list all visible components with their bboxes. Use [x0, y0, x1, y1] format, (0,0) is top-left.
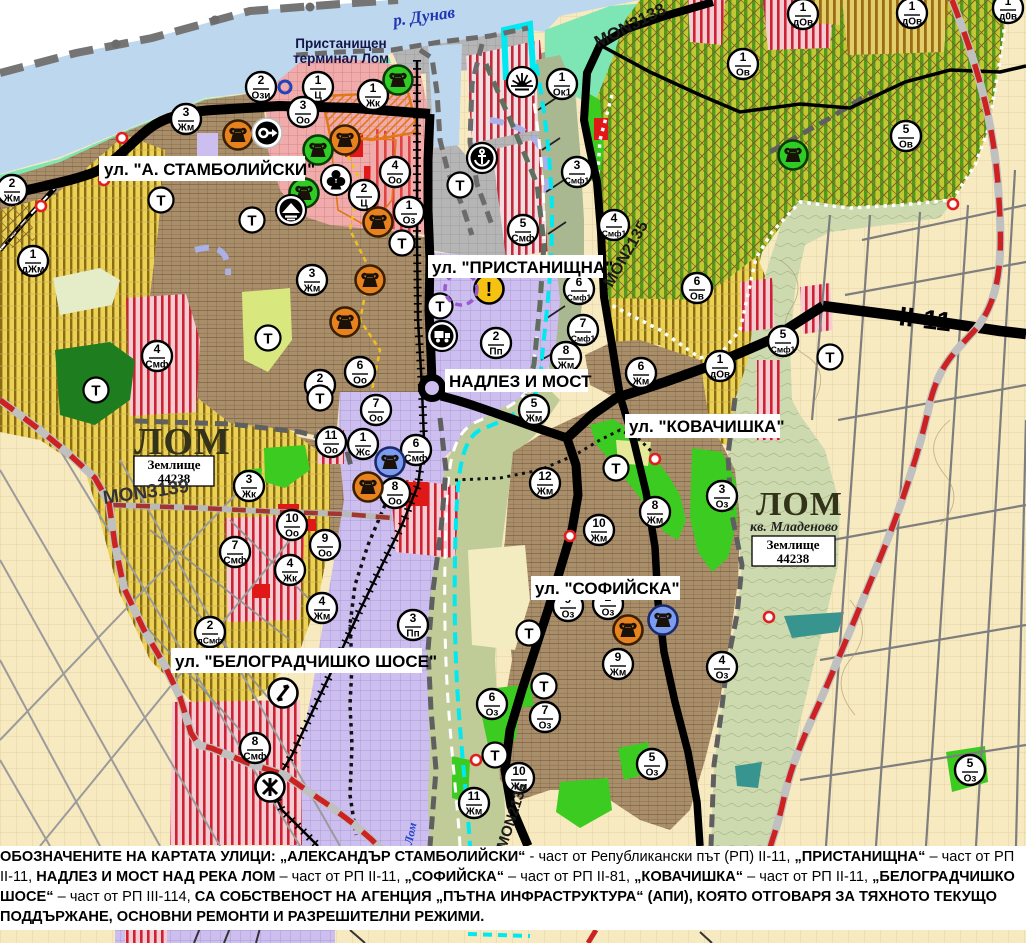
- svg-text:4: 4: [719, 653, 726, 667]
- svg-text:Ц: Ц: [314, 91, 322, 102]
- svg-text:!: !: [486, 279, 493, 301]
- svg-text:Жк: Жк: [241, 490, 257, 501]
- svg-text:Жк: Жк: [365, 99, 381, 110]
- svg-text:II-11: II-11: [897, 301, 953, 337]
- svg-text:Оо: Оо: [296, 116, 310, 127]
- svg-text:3: 3: [246, 472, 253, 486]
- svg-text:Ов: Ов: [690, 292, 704, 303]
- svg-text:Оз: Оз: [646, 768, 659, 779]
- svg-text:Оо: Оо: [285, 529, 299, 540]
- svg-text:ул. "СОФИЙСКА": ул. "СОФИЙСКА": [535, 579, 680, 598]
- svg-text:3: 3: [300, 98, 307, 112]
- svg-text:дОв: дОв: [902, 17, 922, 28]
- svg-text:4: 4: [611, 211, 618, 225]
- svg-text:5: 5: [903, 122, 910, 136]
- svg-text:12: 12: [538, 469, 552, 483]
- svg-text:дЖм: дЖм: [22, 265, 45, 276]
- svg-text:Пристанищен: Пристанищен: [295, 36, 386, 51]
- svg-text:4: 4: [154, 342, 161, 356]
- svg-text:4: 4: [287, 556, 294, 570]
- svg-text:Жм: Жм: [3, 194, 20, 205]
- svg-text:10: 10: [285, 511, 299, 525]
- svg-text:5: 5: [520, 216, 527, 230]
- svg-text:Смф1: Смф1: [602, 229, 627, 239]
- svg-text:Смф1: Смф1: [567, 293, 592, 303]
- svg-text:Т: Т: [611, 461, 620, 478]
- svg-text:Землище: Землище: [766, 537, 819, 552]
- svg-text:6: 6: [357, 358, 364, 372]
- svg-text:Т: Т: [397, 236, 406, 253]
- svg-text:3: 3: [410, 611, 417, 625]
- svg-text:Оо: Оо: [369, 414, 383, 425]
- svg-text:Жм: Жм: [632, 377, 649, 388]
- svg-text:Ов: Ов: [736, 68, 750, 79]
- svg-text:1: 1: [559, 70, 566, 84]
- svg-text:4: 4: [319, 594, 326, 608]
- svg-text:3: 3: [183, 105, 190, 119]
- svg-text:Т: Т: [247, 213, 256, 230]
- svg-text:Т: Т: [539, 679, 548, 696]
- svg-text:1: 1: [370, 81, 377, 95]
- svg-text:Смф: Смф: [511, 233, 534, 245]
- svg-text:Оз: Оз: [539, 721, 552, 732]
- svg-text:Оо: Оо: [318, 549, 332, 560]
- svg-text:11: 11: [468, 789, 481, 803]
- svg-text:1: 1: [1005, 0, 1012, 8]
- svg-text:1: 1: [406, 198, 413, 212]
- svg-text:1: 1: [717, 352, 724, 366]
- svg-text:2: 2: [317, 371, 324, 385]
- svg-text:6: 6: [694, 274, 701, 288]
- svg-text:1: 1: [909, 0, 916, 13]
- svg-text:44238: 44238: [777, 551, 810, 566]
- svg-text:Оо: Оо: [388, 497, 402, 508]
- svg-text:Смф: Смф: [223, 555, 246, 567]
- svg-text:Оз: Оз: [403, 216, 416, 227]
- svg-text:Жм: Жм: [536, 487, 553, 498]
- svg-text:1: 1: [30, 247, 37, 261]
- svg-text:9: 9: [615, 650, 622, 664]
- svg-text:Землище: Землище: [147, 457, 200, 472]
- svg-text:Жм: Жм: [313, 612, 330, 623]
- svg-text:Оз: Оз: [486, 708, 499, 719]
- svg-text:7: 7: [373, 396, 380, 410]
- svg-text:7: 7: [580, 316, 587, 330]
- svg-text:Пп: Пп: [489, 347, 502, 358]
- svg-text:Смф1: Смф1: [565, 176, 590, 186]
- svg-text:7: 7: [542, 703, 549, 717]
- svg-text:дОв: дОв: [793, 18, 813, 29]
- svg-text:6: 6: [489, 690, 496, 704]
- svg-text:кв. Младеново: кв. Младеново: [750, 520, 838, 535]
- svg-text:2: 2: [258, 73, 265, 87]
- svg-text:Ок1: Ок1: [553, 88, 572, 99]
- svg-text:Т: Т: [156, 193, 165, 210]
- svg-text:дОв: дОв: [710, 370, 730, 381]
- svg-text:Т: Т: [263, 331, 272, 348]
- svg-text:Жм: Жм: [609, 668, 626, 679]
- svg-text:6: 6: [638, 359, 645, 373]
- svg-text:Смф1: Смф1: [571, 334, 596, 344]
- svg-text:Жм: Жм: [303, 284, 320, 295]
- svg-text:2: 2: [9, 176, 16, 190]
- svg-text:Т: Т: [490, 748, 499, 765]
- svg-text:Т: Т: [315, 391, 324, 408]
- svg-text:5: 5: [531, 396, 538, 410]
- svg-text:Оо: Оо: [353, 376, 367, 387]
- svg-text:Жм: Жм: [646, 516, 663, 527]
- svg-text:Т: Т: [524, 626, 533, 643]
- svg-text:Оз: Оз: [716, 500, 729, 511]
- svg-text:ул. "ПРИСТАНИЩНА": ул. "ПРИСТАНИЩНА": [432, 258, 613, 277]
- svg-text:терминал Лом: терминал Лом: [293, 51, 389, 66]
- svg-text:5: 5: [967, 756, 974, 770]
- svg-text:Смф: Смф: [404, 453, 427, 465]
- svg-text:1: 1: [740, 50, 747, 64]
- svg-text:1: 1: [315, 73, 322, 87]
- svg-text:Жм: Жм: [177, 123, 194, 134]
- svg-text:9: 9: [322, 531, 329, 545]
- svg-text:Оз: Оз: [964, 774, 977, 785]
- svg-text:ул. "БЕЛОГРАДЧИШКО ШОСЕ": ул. "БЕЛОГРАДЧИШКО ШОСЕ": [175, 652, 437, 671]
- svg-text:2: 2: [361, 181, 368, 195]
- svg-text:5: 5: [649, 750, 656, 764]
- svg-text:НАДЛЕЗ И МОСТ: НАДЛЕЗ И МОСТ: [449, 372, 592, 391]
- svg-text:3: 3: [574, 158, 581, 172]
- svg-text:Жм: Жм: [525, 414, 542, 425]
- svg-text:4: 4: [392, 158, 399, 172]
- svg-text:дСмф: дСмф: [197, 636, 223, 646]
- svg-text:Смф: Смф: [145, 359, 168, 371]
- svg-text:ул. "КОВАЧИШКА": ул. "КОВАЧИШКА": [629, 417, 785, 436]
- svg-text:д0в: д0в: [999, 12, 1017, 23]
- svg-text:8: 8: [392, 479, 399, 493]
- svg-text:8: 8: [563, 343, 570, 357]
- svg-text:Т: Т: [455, 178, 464, 195]
- svg-text:Ози: Ози: [252, 91, 271, 102]
- svg-text:Оо: Оо: [324, 446, 338, 457]
- svg-text:Оо: Оо: [388, 176, 402, 187]
- svg-text:11: 11: [325, 428, 338, 442]
- svg-text:8: 8: [652, 498, 659, 512]
- svg-text:Т: Т: [91, 383, 100, 400]
- svg-text:1: 1: [800, 0, 807, 14]
- svg-text:Смф1: Смф1: [771, 345, 796, 355]
- svg-text:2: 2: [493, 329, 500, 343]
- svg-text:3: 3: [309, 266, 316, 280]
- svg-text:1: 1: [360, 430, 367, 444]
- svg-text:Жм: Жм: [465, 807, 482, 818]
- svg-text:Пп: Пп: [406, 629, 419, 640]
- svg-text:3: 3: [719, 482, 726, 496]
- svg-text:8: 8: [252, 734, 259, 748]
- svg-text:Жм: Жм: [590, 534, 607, 545]
- svg-text:Оз: Оз: [602, 608, 615, 619]
- svg-text:Оз: Оз: [716, 671, 729, 682]
- svg-text:Ц: Ц: [360, 199, 368, 210]
- svg-text:10: 10: [592, 516, 606, 530]
- svg-text:Оз: Оз: [562, 610, 575, 621]
- svg-text:Жк: Жк: [282, 574, 298, 585]
- svg-text:Т: Т: [435, 299, 444, 316]
- svg-text:ЛОМ: ЛОМ: [756, 486, 843, 523]
- svg-text:Жс: Жс: [355, 448, 371, 459]
- svg-text:7: 7: [232, 538, 239, 552]
- svg-text:5: 5: [780, 327, 787, 341]
- svg-text:10: 10: [512, 764, 526, 778]
- svg-text:2: 2: [207, 618, 214, 632]
- svg-text:ул. "А. СТАМБОЛИЙСКИ": ул. "А. СТАМБОЛИЙСКИ": [104, 160, 315, 179]
- svg-text:Ов: Ов: [899, 140, 913, 151]
- svg-text:6: 6: [413, 436, 420, 450]
- svg-text:Т: Т: [825, 350, 834, 367]
- svg-text:Смф: Смф: [243, 751, 266, 763]
